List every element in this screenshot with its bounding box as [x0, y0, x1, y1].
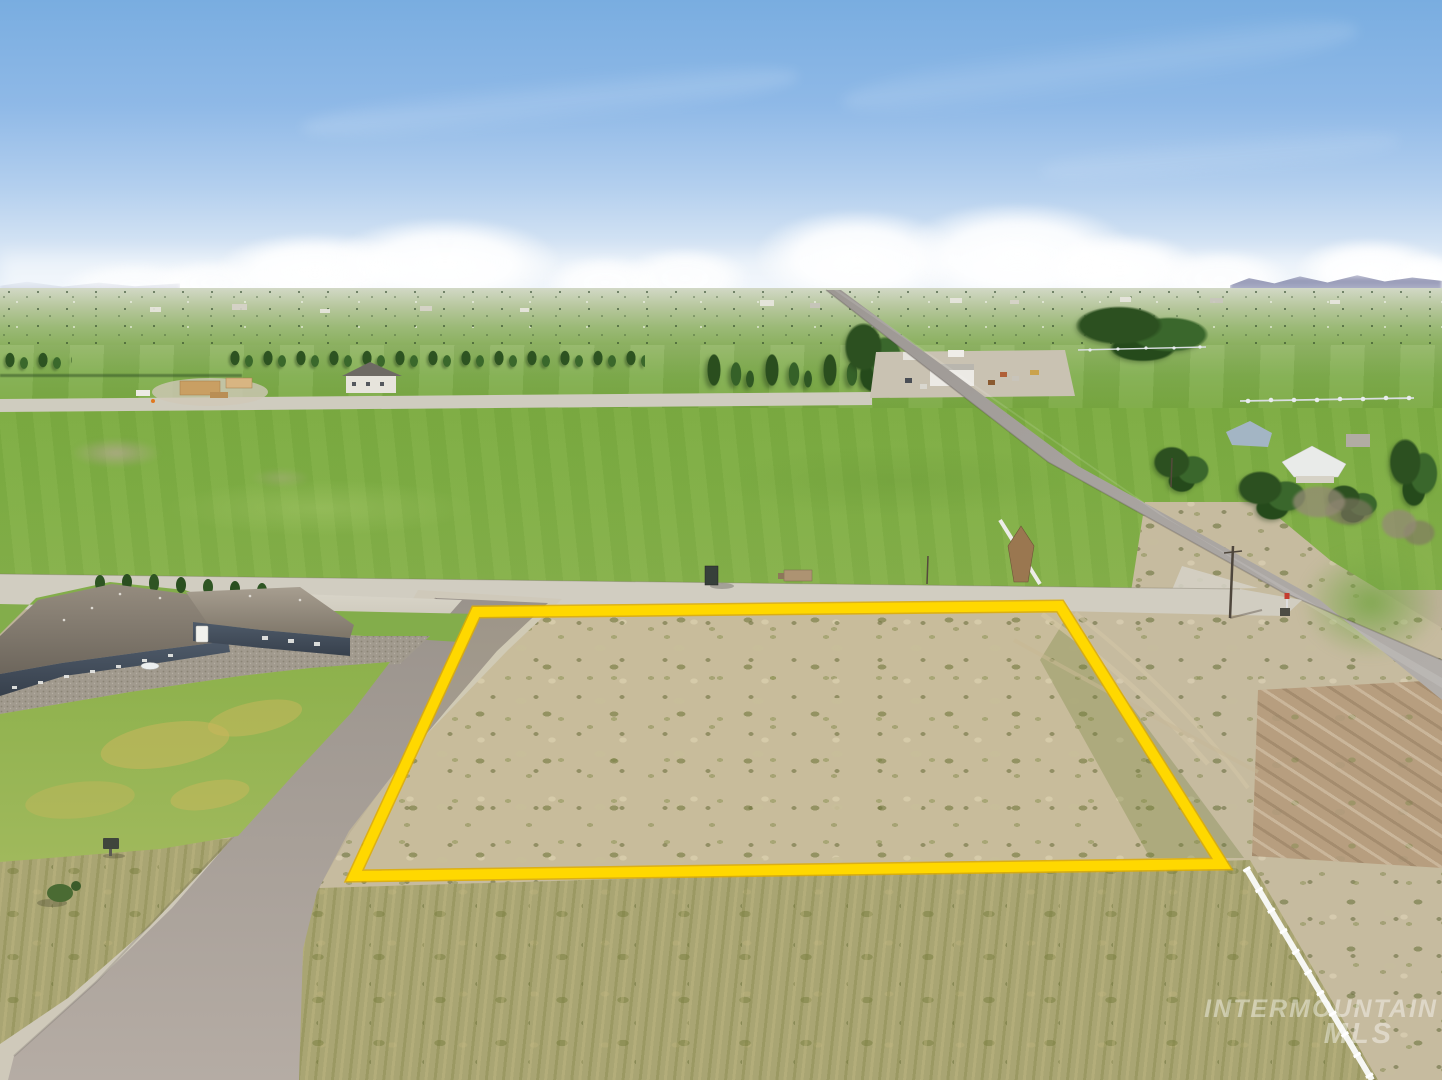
watermark-line2: MLS: [1204, 1020, 1438, 1050]
equipment-trailer: [778, 570, 812, 581]
far-gravel-road: [0, 392, 872, 412]
watermark-line1: INTERMOUNTAIN: [1204, 997, 1438, 1023]
neighbor-houses: [1226, 421, 1370, 483]
distant-house: [342, 362, 402, 393]
lawn-shrub: [37, 881, 81, 907]
house-door: [196, 626, 208, 642]
mls-watermark: INTERMOUNTAIN MLS: [1204, 997, 1438, 1050]
scene-overlay: [0, 0, 1442, 1080]
lot-outline: [354, 606, 1222, 876]
irrigation-wheel-line: [1078, 345, 1414, 403]
aerial-photo: INTERMOUNTAIN MLS: [0, 0, 1442, 1080]
utility-pole-small: [927, 458, 1172, 584]
distant-buildings: [150, 297, 1340, 313]
grain-hopper: [1000, 520, 1040, 584]
propane-tank: [141, 663, 159, 670]
